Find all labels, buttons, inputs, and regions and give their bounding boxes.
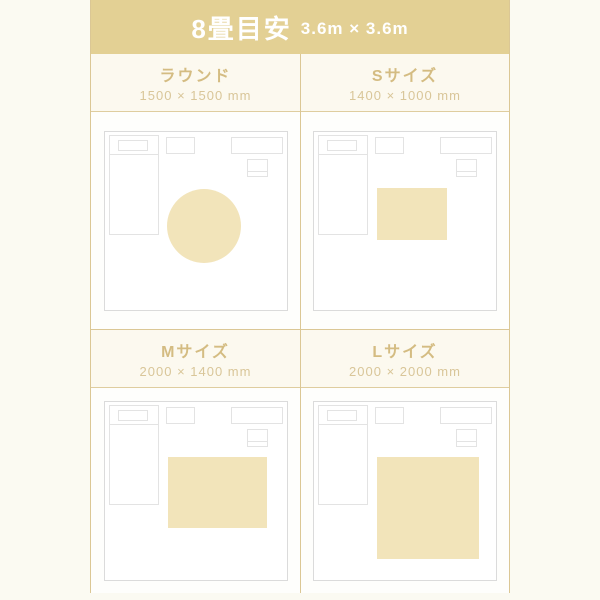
desk [440,137,492,154]
cell-s-room-area [301,112,509,329]
cell-l-room-area [301,388,509,593]
main-title: 8畳目安 [191,9,291,46]
bed [109,154,159,235]
main-subtitle: 3.6m × 3.6m [301,19,409,39]
cell-m-header: Mサイズ 2000 × 1400 mm [91,330,300,388]
desk-chair [247,429,268,447]
chair-backrest-line [457,441,476,442]
main-header: 8畳目安 3.6m × 3.6m [91,0,509,54]
cell-m-size: Mサイズ 2000 × 1400 mm [91,329,300,593]
room-diagram-round [104,131,288,311]
rug-l [377,457,479,559]
cell-m-room-area [91,388,300,593]
cell-l-dims: 2000 × 2000 mm [349,364,461,379]
cell-s-header: Sサイズ 1400 × 1000 mm [301,54,509,112]
cell-round-room-area [91,112,300,329]
rug-round [167,189,241,263]
room-diagram-m [104,401,288,581]
cell-l-size: Lサイズ 2000 × 2000 mm [300,329,509,593]
cell-l-header: Lサイズ 2000 × 2000 mm [301,330,509,388]
room-diagram-s [313,131,497,311]
bed-pillow [327,410,357,421]
cell-round-title: ラウンド [159,62,231,86]
side-table [166,407,195,424]
desk-chair [247,159,268,177]
rug-s [377,188,447,240]
bed [318,424,368,505]
desk [231,407,283,424]
bed-pillow [118,410,148,421]
desk-chair [456,429,477,447]
chair-backrest-line [457,171,476,172]
desk [440,407,492,424]
cell-l-title: Lサイズ [372,338,437,362]
size-guide-sheet: 8畳目安 3.6m × 3.6m ラウンド 1500 × 1500 mm [90,0,510,593]
size-grid: ラウンド 1500 × 1500 mm Sサイズ 1400 × 1000 [91,54,509,593]
side-table [375,137,404,154]
cell-round-dims: 1500 × 1500 mm [140,88,252,103]
room-diagram-l [313,401,497,581]
side-table [375,407,404,424]
bed [109,424,159,505]
cell-m-title: Mサイズ [161,338,230,362]
cell-s-title: Sサイズ [372,62,438,86]
cell-s-dims: 1400 × 1000 mm [349,88,461,103]
cell-m-dims: 2000 × 1400 mm [140,364,252,379]
rug-m [168,457,267,528]
bed [318,154,368,235]
cell-round: ラウンド 1500 × 1500 mm [91,54,300,329]
cell-s-size: Sサイズ 1400 × 1000 mm [300,54,509,329]
desk [231,137,283,154]
side-table [166,137,195,154]
chair-backrest-line [248,441,267,442]
chair-backrest-line [248,171,267,172]
bed-pillow [327,140,357,151]
desk-chair [456,159,477,177]
cell-round-header: ラウンド 1500 × 1500 mm [91,54,300,112]
bed-pillow [118,140,148,151]
